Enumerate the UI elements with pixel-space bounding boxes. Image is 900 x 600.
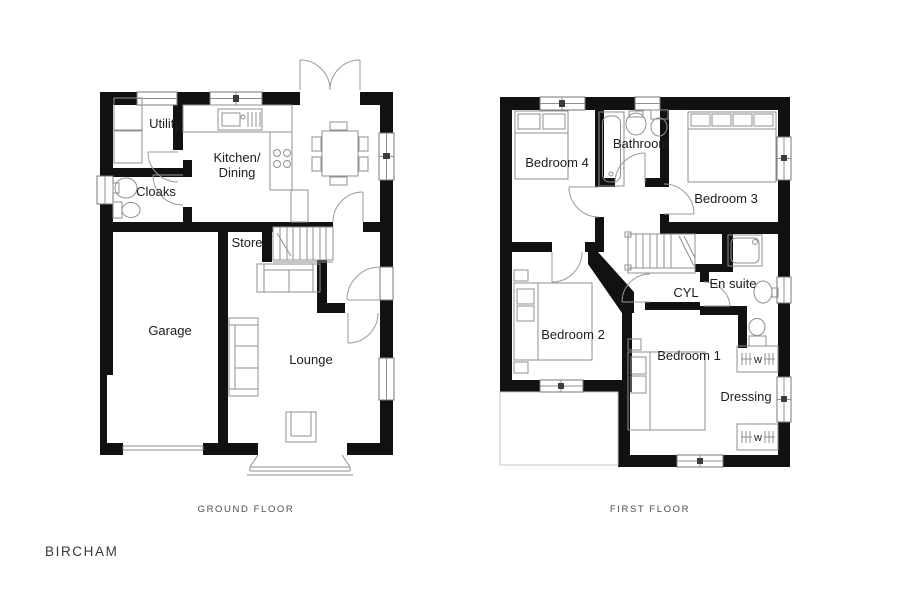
- kitchen-window: [210, 92, 262, 105]
- kitchen-label-line2: Dining: [219, 165, 256, 180]
- ensuite-toilet: [749, 319, 766, 347]
- ground-floor-caption: GROUND FLOOR: [198, 504, 295, 515]
- ground-stairs: [273, 227, 333, 262]
- wardrobe-1: w: [737, 346, 778, 372]
- bedroom3-door: [664, 184, 694, 214]
- cloaks-window: [97, 176, 113, 204]
- plan-title: BIRCHAM: [45, 544, 118, 559]
- bedroom4-label: Bedroom 4: [525, 155, 589, 170]
- kitchen-fixtures: [183, 105, 368, 222]
- dining-window: [379, 133, 394, 180]
- bedroom3-window: [777, 137, 791, 180]
- lounge-door: [348, 313, 378, 343]
- kitchen-hall-door: [333, 192, 363, 222]
- bathroom-basin: [626, 111, 646, 135]
- kitchen-label-line1: Kitchen/: [214, 150, 261, 165]
- french-doors: [300, 60, 360, 90]
- ensuite-label: En suite: [710, 276, 757, 291]
- bed-3: [688, 112, 776, 182]
- kitchen-sink: [218, 109, 262, 130]
- bay-window: [247, 455, 353, 475]
- floorplan-drawing: Utility Cloaks Kitchen/ Dining Store Gar…: [0, 0, 900, 600]
- hob: [274, 150, 291, 168]
- dressing-label: Dressing: [720, 389, 771, 404]
- ensuite-window: [777, 277, 791, 303]
- wardrobe1-label: w: [753, 354, 762, 366]
- bedroom3-label: Bedroom 3: [694, 191, 758, 206]
- floorplan-page: Utility Cloaks Kitchen/ Dining Store Gar…: [0, 0, 900, 600]
- sofa-left: [229, 318, 258, 396]
- garage-door: [123, 446, 203, 450]
- lounge-label: Lounge: [289, 352, 332, 367]
- shower: [728, 235, 762, 266]
- sofa-top: [257, 264, 320, 292]
- utility-door: [148, 152, 178, 182]
- cloaks-label: Cloaks: [136, 184, 176, 199]
- garage-label: Garage: [148, 323, 191, 338]
- first-stairs: [625, 232, 695, 273]
- utility-window: [137, 92, 177, 105]
- first-floor-caption: FIRST FLOOR: [610, 504, 690, 515]
- first-floor-plan: w w Bedroom 4 Bathroom Bedroom 3 Bedroom…: [500, 97, 791, 467]
- bedroom4-door: [569, 187, 599, 217]
- lounge-window: [379, 358, 394, 400]
- dressing-window: [777, 377, 791, 422]
- kitchen-peninsula: [291, 190, 308, 222]
- cyl-label: CYL: [673, 285, 698, 300]
- cloaks-basin: [113, 178, 137, 198]
- wardrobe2-label: w: [753, 432, 762, 444]
- bed-2: [514, 270, 592, 373]
- cloaks-toilet: [113, 202, 140, 218]
- bathroom-label: Bathroom: [613, 136, 669, 151]
- bedroom2-label: Bedroom 2: [541, 327, 605, 342]
- bathroom-window: [635, 97, 660, 110]
- roof-below-outline: [500, 392, 618, 465]
- dining-table: [312, 122, 368, 185]
- armchair: [286, 412, 316, 442]
- wardrobe-2: w: [737, 424, 778, 450]
- ground-floor-plan: Utility Cloaks Kitchen/ Dining Store Gar…: [97, 60, 394, 475]
- bedroom2-window: [540, 380, 583, 392]
- utility-fixtures: [114, 98, 142, 163]
- utility-label: Utility: [149, 116, 181, 131]
- bedroom1-label: Bedroom 1: [657, 348, 721, 363]
- bedroom2-door: [552, 252, 582, 282]
- front-door: [347, 267, 393, 300]
- dryer: [114, 131, 142, 163]
- bedroom1-window: [677, 455, 723, 467]
- bedroom4-window: [540, 97, 585, 110]
- ensuite-basin: [754, 281, 778, 303]
- store-label: Store: [231, 235, 262, 250]
